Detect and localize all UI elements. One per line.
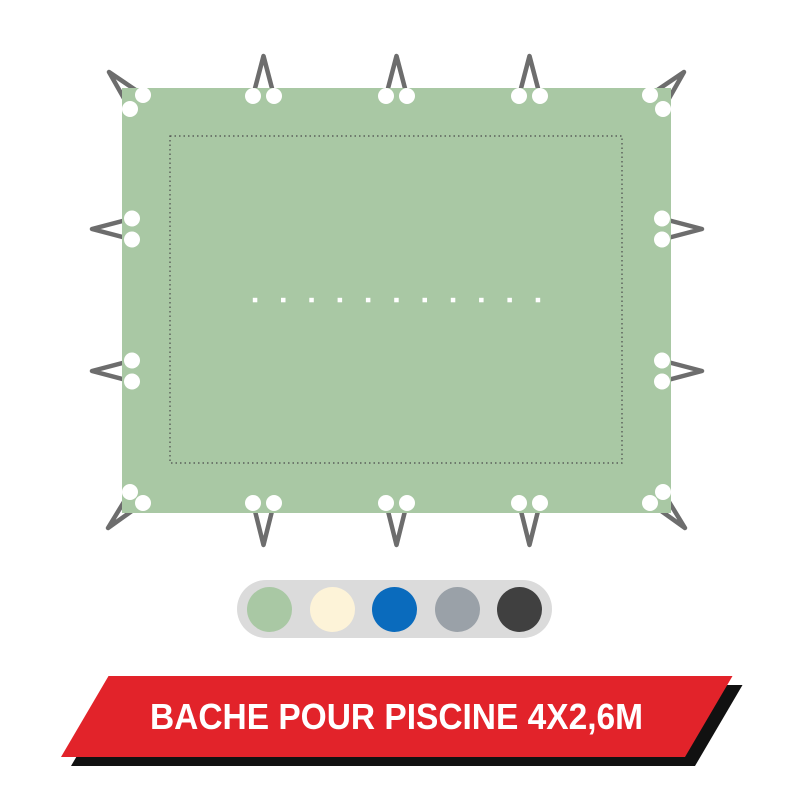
perforation-dot <box>394 298 399 303</box>
eyelet <box>532 495 548 511</box>
perforation-dot <box>338 298 343 303</box>
perforation-dot <box>507 298 512 303</box>
perforation-dot <box>536 298 541 303</box>
eyelet <box>511 88 527 104</box>
swatch-blue[interactable] <box>372 587 417 632</box>
eyelet <box>654 374 670 390</box>
eyelet <box>511 495 527 511</box>
eyelet <box>655 101 671 117</box>
eyelet <box>124 374 140 390</box>
eyelet <box>378 88 394 104</box>
eyelet <box>245 495 261 511</box>
eyelet <box>378 495 394 511</box>
eyelet <box>266 495 282 511</box>
eyelet <box>654 353 670 369</box>
swatch-cream[interactable] <box>310 587 355 632</box>
product-illustration: BACHE POUR PISCINE 4X2,6M <box>0 0 800 800</box>
perforation-dot <box>366 298 371 303</box>
tarp-graphic <box>0 0 800 570</box>
swatch-gray[interactable] <box>435 587 480 632</box>
eyelet <box>654 211 670 227</box>
eyelet <box>399 495 415 511</box>
banner-title: BACHE POUR PISCINE 4X2,6M <box>28 676 765 757</box>
perforation-dot <box>423 298 428 303</box>
eyelet <box>135 87 151 103</box>
eyelet <box>124 211 140 227</box>
perforation-dot <box>479 298 484 303</box>
eyelet <box>655 484 671 500</box>
eyelet <box>135 495 151 511</box>
perforation-dot <box>309 298 314 303</box>
eyelet <box>532 88 548 104</box>
eyelet <box>124 353 140 369</box>
eyelet <box>642 495 658 511</box>
eyelet <box>266 88 282 104</box>
eyelet <box>122 484 138 500</box>
eyelet <box>122 101 138 117</box>
perforation-dot <box>451 298 456 303</box>
eyelet <box>124 232 140 248</box>
perforation-dot <box>253 298 257 303</box>
perforation-dot <box>281 298 286 303</box>
eyelet <box>399 88 415 104</box>
eyelet <box>654 232 670 248</box>
swatch-anthracite[interactable] <box>497 587 542 632</box>
color-swatch-bar <box>237 580 552 638</box>
swatch-green[interactable] <box>247 587 292 632</box>
eyelet <box>642 87 658 103</box>
eyelet <box>245 88 261 104</box>
